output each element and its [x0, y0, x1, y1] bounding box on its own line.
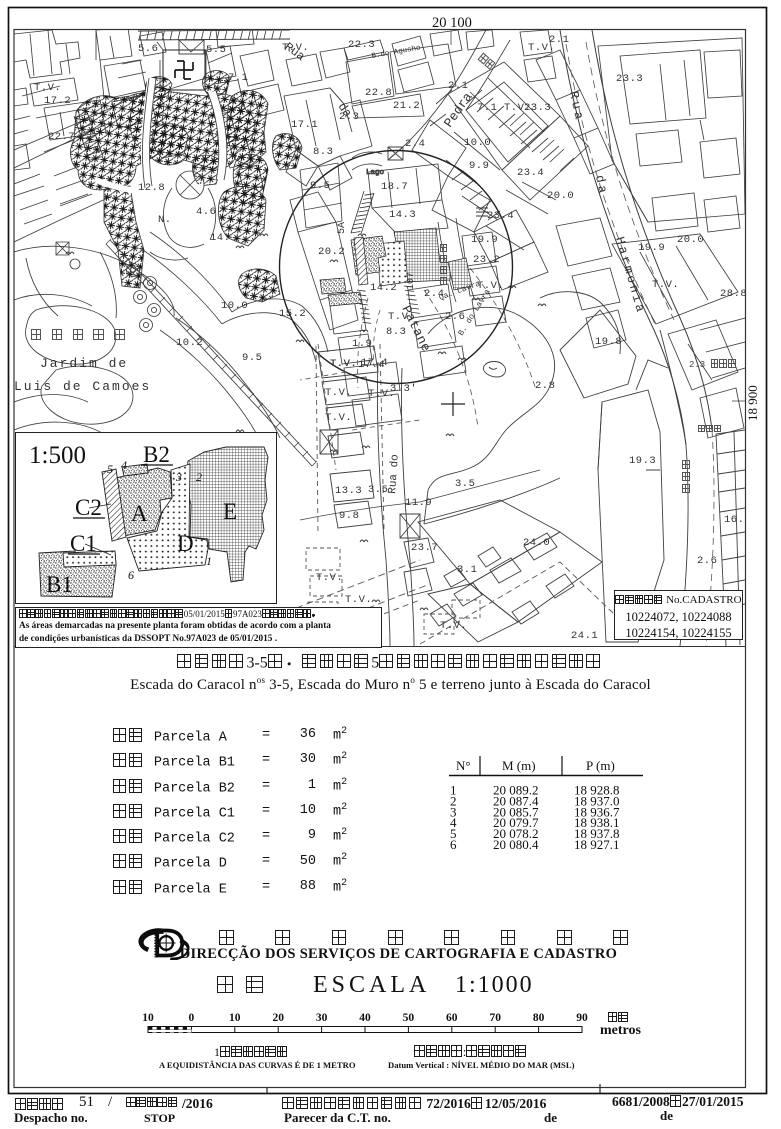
svg-text:3.1: 3.1: [457, 564, 477, 576]
svg-text:0: 0: [189, 1012, 195, 1024]
svg-text:T.V.: T.V.: [440, 620, 467, 632]
svg-text:23.4: 23.4: [517, 167, 544, 179]
svg-text:7.1: 7.1: [228, 72, 248, 84]
svg-text:1:500: 1:500: [29, 442, 86, 469]
svg-text:3.5: 3.5: [455, 478, 475, 490]
svg-text:Rua: Rua: [566, 90, 586, 124]
svg-text:23.7: 23.7: [411, 542, 438, 554]
svg-text:5.5: 5.5: [206, 44, 226, 56]
svg-text:30: 30: [316, 1012, 328, 1024]
svg-text:9.5: 9.5: [310, 180, 330, 192]
svg-text:5: 5: [107, 462, 113, 476]
svg-text:10: 10: [142, 1012, 154, 1024]
svg-text:2.4: 2.4: [405, 138, 425, 150]
svg-text:20.2: 20.2: [318, 246, 345, 258]
svg-text:1.9: 1.9: [352, 338, 372, 350]
svg-text:Luis de Camoes: Luis de Camoes: [14, 379, 151, 394]
svg-text:T.V.: T.V.: [34, 82, 61, 94]
svg-text:C2: C2: [75, 495, 102, 520]
svg-text:20 100: 20 100: [432, 15, 472, 31]
svg-text:8.3: 8.3: [386, 326, 406, 338]
svg-text:D: D: [177, 531, 194, 556]
svg-text:B1: B1: [46, 572, 73, 597]
svg-text:10.2: 10.2: [176, 337, 203, 349]
svg-text:23.4: 23.4: [487, 210, 514, 222]
svg-text:A: A: [131, 501, 148, 526]
svg-text:60: 60: [446, 1012, 458, 1024]
svg-text:T.V.: T.V.: [325, 412, 352, 424]
svg-text:20.0: 20.0: [677, 234, 704, 246]
svg-text:28.8: 28.8: [720, 288, 747, 300]
svg-text:8.3: 8.3: [313, 146, 333, 158]
svg-text:13.3: 13.3: [335, 485, 362, 497]
svg-text:2: 2: [196, 470, 202, 484]
svg-text:B.do Agusho: B.do Agusho: [371, 44, 422, 61]
svg-text:5.6: 5.6: [138, 43, 158, 55]
svg-text:2.8: 2.8: [535, 380, 555, 392]
svg-text:16.: 16.: [724, 514, 744, 526]
svg-text:18 927.1: 18 927.1: [574, 837, 620, 852]
svg-text:18.7: 18.7: [381, 181, 408, 193]
svg-text:1: 1: [206, 554, 212, 568]
svg-text:22.3: 22.3: [348, 39, 375, 51]
svg-text:Pedra: Pedra: [441, 90, 476, 131]
svg-text:T.V.: T.V.: [652, 279, 679, 291]
svg-text:T.V.: T.V.: [316, 572, 343, 584]
svg-text:E: E: [223, 499, 237, 524]
svg-text:2.1: 2.1: [549, 34, 569, 46]
svg-text:N°: N°: [456, 758, 471, 773]
svg-text:6: 6: [128, 568, 134, 582]
svg-text:23.2: 23.2: [473, 254, 500, 266]
svg-text:2.6: 2.6: [697, 555, 717, 567]
svg-text:40: 40: [359, 1012, 371, 1024]
svg-text:5A: 5A: [337, 222, 348, 234]
svg-text:10.0: 10.0: [464, 137, 491, 149]
svg-text:22.8: 22.8: [365, 87, 392, 99]
svg-text:4.6: 4.6: [196, 206, 216, 218]
svg-text:10: 10: [229, 1012, 241, 1024]
svg-text:6: 6: [450, 837, 457, 852]
svg-text:19.8: 19.8: [595, 336, 622, 348]
svg-text:T.V.: T.V.: [345, 594, 372, 606]
svg-text:T.V.: T.V.: [368, 388, 395, 400]
svg-text:24.1: 24.1: [571, 630, 598, 642]
svg-text:T.V.: T.V.: [330, 358, 357, 370]
svg-text:23.3: 23.3: [616, 73, 643, 85]
svg-text:17.4: 17.4: [361, 357, 388, 369]
svg-text:2.1: 2.1: [448, 80, 468, 92]
svg-text:14.2: 14.2: [370, 282, 397, 294]
svg-text:80: 80: [533, 1012, 545, 1024]
svg-text:T.V.: T.V.: [325, 387, 352, 399]
svg-text:9.5: 9.5: [242, 352, 262, 364]
svg-text:3.5: 3.5: [368, 484, 388, 496]
svg-text:18 900: 18 900: [745, 385, 760, 421]
svg-text:14.: 14.: [210, 232, 230, 244]
svg-text:Lago: Lago: [366, 169, 385, 177]
svg-text:20: 20: [272, 1012, 284, 1024]
svg-text:C1: C1: [70, 531, 97, 556]
svg-text:Rua do: Rua do: [387, 454, 402, 494]
svg-text:15.2: 15.2: [279, 308, 306, 320]
svg-text:19.9: 19.9: [471, 234, 498, 246]
svg-text:20.0: 20.0: [547, 190, 574, 202]
svg-text:70: 70: [489, 1012, 501, 1024]
svg-text:B2: B2: [143, 442, 170, 467]
svg-text:90: 90: [576, 1012, 588, 1024]
svg-text:7.1: 7.1: [477, 102, 497, 114]
svg-text:da: da: [592, 174, 610, 197]
svg-text:19.3: 19.3: [629, 455, 656, 467]
svg-text:N.: N.: [158, 214, 172, 226]
svg-text:21.2: 21.2: [393, 100, 420, 112]
svg-text:2.6: 2.6: [445, 311, 465, 323]
svg-text:107: 107: [406, 272, 417, 290]
svg-text:14.3: 14.3: [389, 209, 416, 221]
svg-text:P (m): P (m): [586, 758, 615, 773]
svg-text:24.0: 24.0: [523, 537, 550, 549]
svg-text:9.9: 9.9: [469, 160, 489, 172]
svg-text:4: 4: [121, 458, 127, 472]
svg-text:9.8: 9.8: [339, 510, 359, 522]
svg-text:20 080.4: 20 080.4: [493, 837, 539, 852]
svg-text:50: 50: [403, 1012, 415, 1024]
svg-text:T.V.: T.V.: [477, 280, 504, 292]
svg-text:T.V.: T.V.: [504, 102, 531, 114]
svg-text:M (m): M (m): [502, 758, 536, 773]
svg-text:Jardim de: Jardim de: [40, 356, 128, 371]
svg-text:19.9: 19.9: [638, 242, 665, 254]
svg-text:12.8: 12.8: [138, 182, 165, 194]
svg-text:22.7: 22.7: [48, 131, 75, 143]
svg-text:17.2: 17.2: [44, 95, 71, 107]
svg-text:10.0: 10.0: [221, 300, 248, 312]
svg-text:17.1: 17.1: [291, 119, 318, 131]
svg-text:11.9: 11.9: [405, 497, 432, 509]
svg-text:3: 3: [175, 470, 182, 484]
